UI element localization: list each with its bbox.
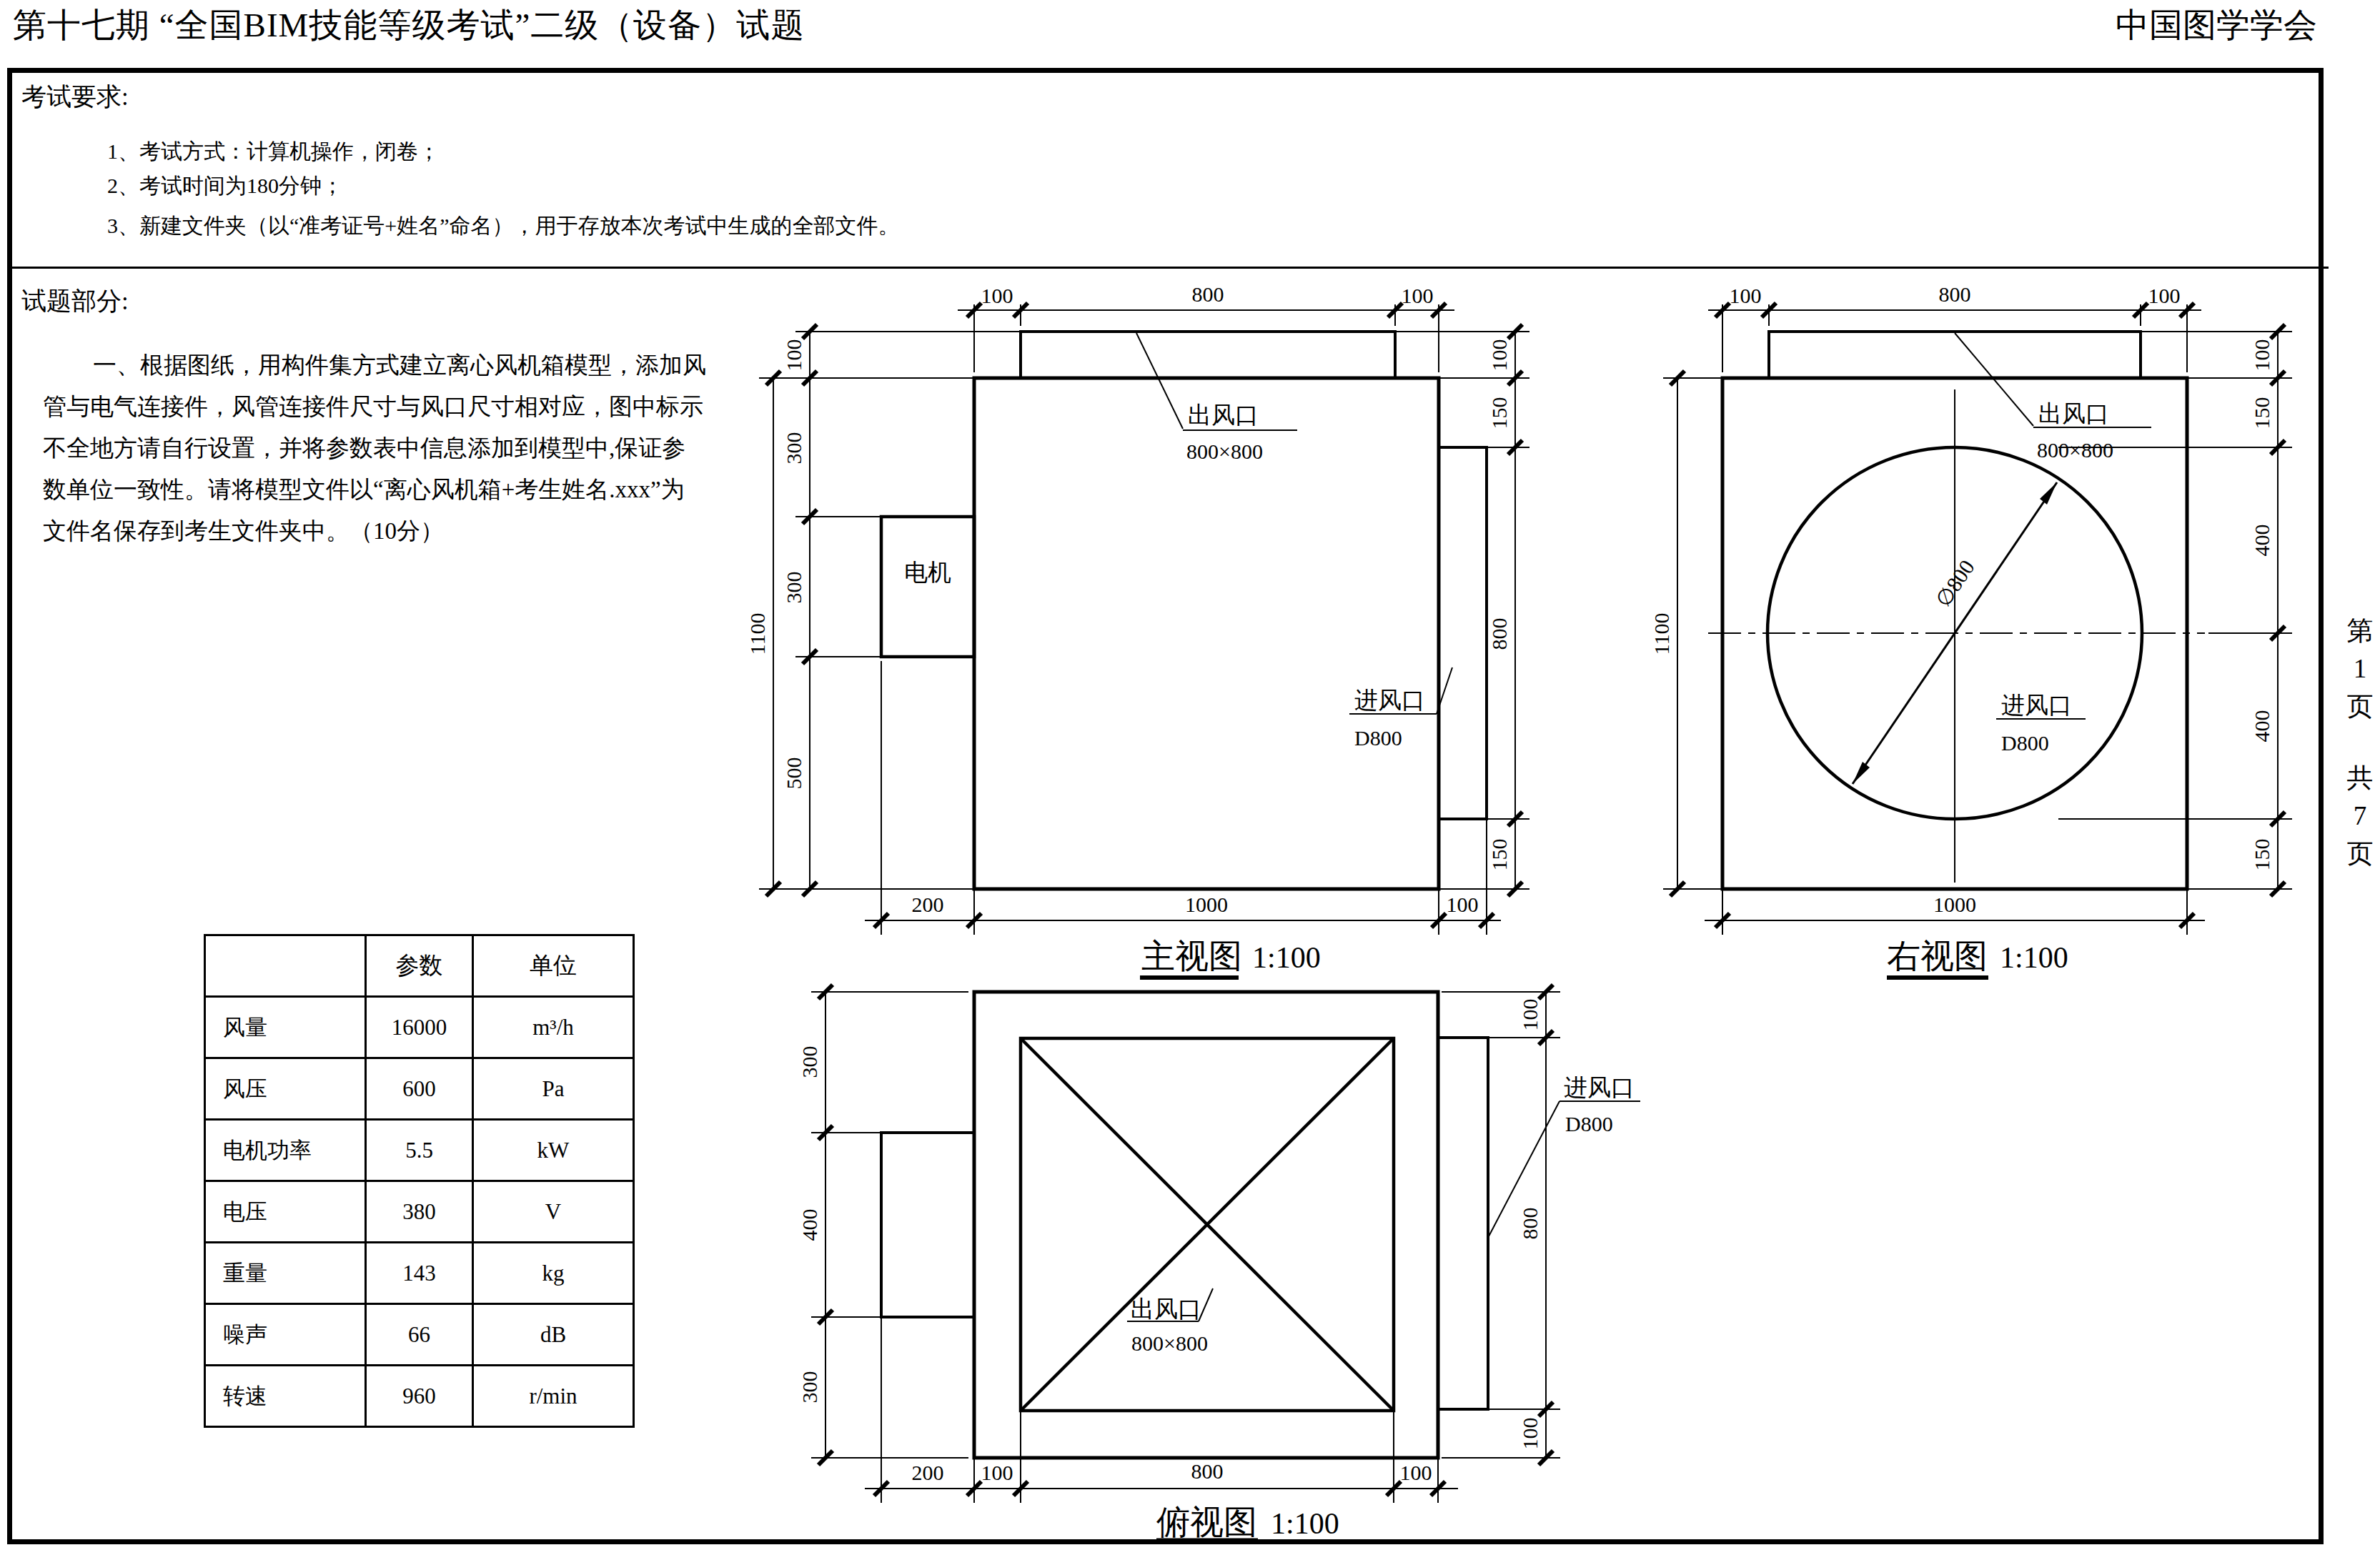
dim-label: 300 xyxy=(798,1046,821,1078)
dim-label: 800 xyxy=(1939,282,1971,306)
outlet-size-label: 800×800 xyxy=(2037,438,2113,462)
dim-label: 300 xyxy=(782,432,805,464)
dim-label: 200 xyxy=(912,1461,944,1484)
view-title: 俯视图 xyxy=(1156,1504,1257,1541)
dim-label: 100 xyxy=(1487,339,1511,372)
technical-drawing: 1008001001100100300300500100150800150200… xyxy=(0,0,2380,1555)
top-inlet-panel xyxy=(1438,1038,1488,1409)
inlet-label: 进风口 xyxy=(1564,1075,1635,1101)
right-view xyxy=(1708,332,2205,889)
dim-label: 800 xyxy=(1487,618,1511,650)
dim-label: 100 xyxy=(1400,1461,1432,1484)
dimension-linework xyxy=(759,303,2292,1541)
outlet-label: 出风口 xyxy=(2038,401,2109,427)
view-scale: 1:100 xyxy=(1271,1507,1339,1540)
front-outlet-duct xyxy=(1021,332,1395,378)
dim-label: 100 xyxy=(782,339,805,372)
dim-label: 500 xyxy=(782,757,805,790)
dim-label: 100 xyxy=(1447,893,1479,916)
dim-label: 100 xyxy=(2148,284,2181,307)
outlet-size-label: 800×800 xyxy=(1186,439,1263,463)
right-outlet-duct xyxy=(1769,332,2141,378)
inlet-size-label: D800 xyxy=(1354,726,1402,750)
dim-label: 200 xyxy=(912,893,944,916)
front-inlet-panel xyxy=(1439,447,1487,819)
dim-label: 100 xyxy=(1402,284,1434,307)
dim-label: 400 xyxy=(2250,525,2274,557)
outlet-size-label: 800×800 xyxy=(1131,1331,1208,1355)
inlet-label: 进风口 xyxy=(1354,687,1425,713)
dim-label: 100 xyxy=(1730,284,1762,307)
dim-label: 150 xyxy=(1487,839,1511,871)
diameter-label: ∅800 xyxy=(1931,555,1979,610)
view-scale: 1:100 xyxy=(1252,941,1321,974)
outlet-label: 出风口 xyxy=(1131,1296,1201,1322)
dim-label: 800 xyxy=(1191,1459,1224,1483)
dim-label: 800 xyxy=(1192,282,1224,306)
view-title: 主视图 xyxy=(1141,938,1242,975)
dim-label: 800 xyxy=(1518,1208,1542,1240)
inlet-label: 进风口 xyxy=(2001,692,2072,718)
dim-label: 100 xyxy=(1518,999,1542,1031)
dim-label: 150 xyxy=(1487,397,1511,429)
dim-label: 400 xyxy=(2250,710,2274,742)
dim-label: 150 xyxy=(2250,839,2274,871)
dim-label: 100 xyxy=(2250,339,2274,372)
dim-label: 1000 xyxy=(1185,893,1228,916)
motor-label: 电机 xyxy=(904,560,951,585)
front-motor-box xyxy=(881,517,974,657)
outlet-label: 出风口 xyxy=(1188,402,1259,428)
view-scale: 1:100 xyxy=(2000,941,2068,974)
front-view xyxy=(881,332,1487,889)
top-view xyxy=(881,992,1488,1458)
top-motor-box xyxy=(881,1133,974,1317)
dim-label: 100 xyxy=(981,1461,1013,1484)
dim-label: 100 xyxy=(1518,1418,1542,1450)
dim-label: 300 xyxy=(798,1371,821,1404)
dim-label: 1000 xyxy=(1933,893,1976,916)
dim-label: 300 xyxy=(782,572,805,604)
dim-label: 400 xyxy=(798,1209,821,1241)
dim-label: 1100 xyxy=(745,613,769,655)
inlet-size-label: D800 xyxy=(1565,1112,1613,1136)
dim-label: 150 xyxy=(2250,397,2274,429)
dim-label: 100 xyxy=(981,284,1013,307)
dim-label: 1100 xyxy=(1650,613,1673,655)
view-title: 右视图 xyxy=(1887,938,1988,975)
inlet-size-label: D800 xyxy=(2001,731,2049,755)
